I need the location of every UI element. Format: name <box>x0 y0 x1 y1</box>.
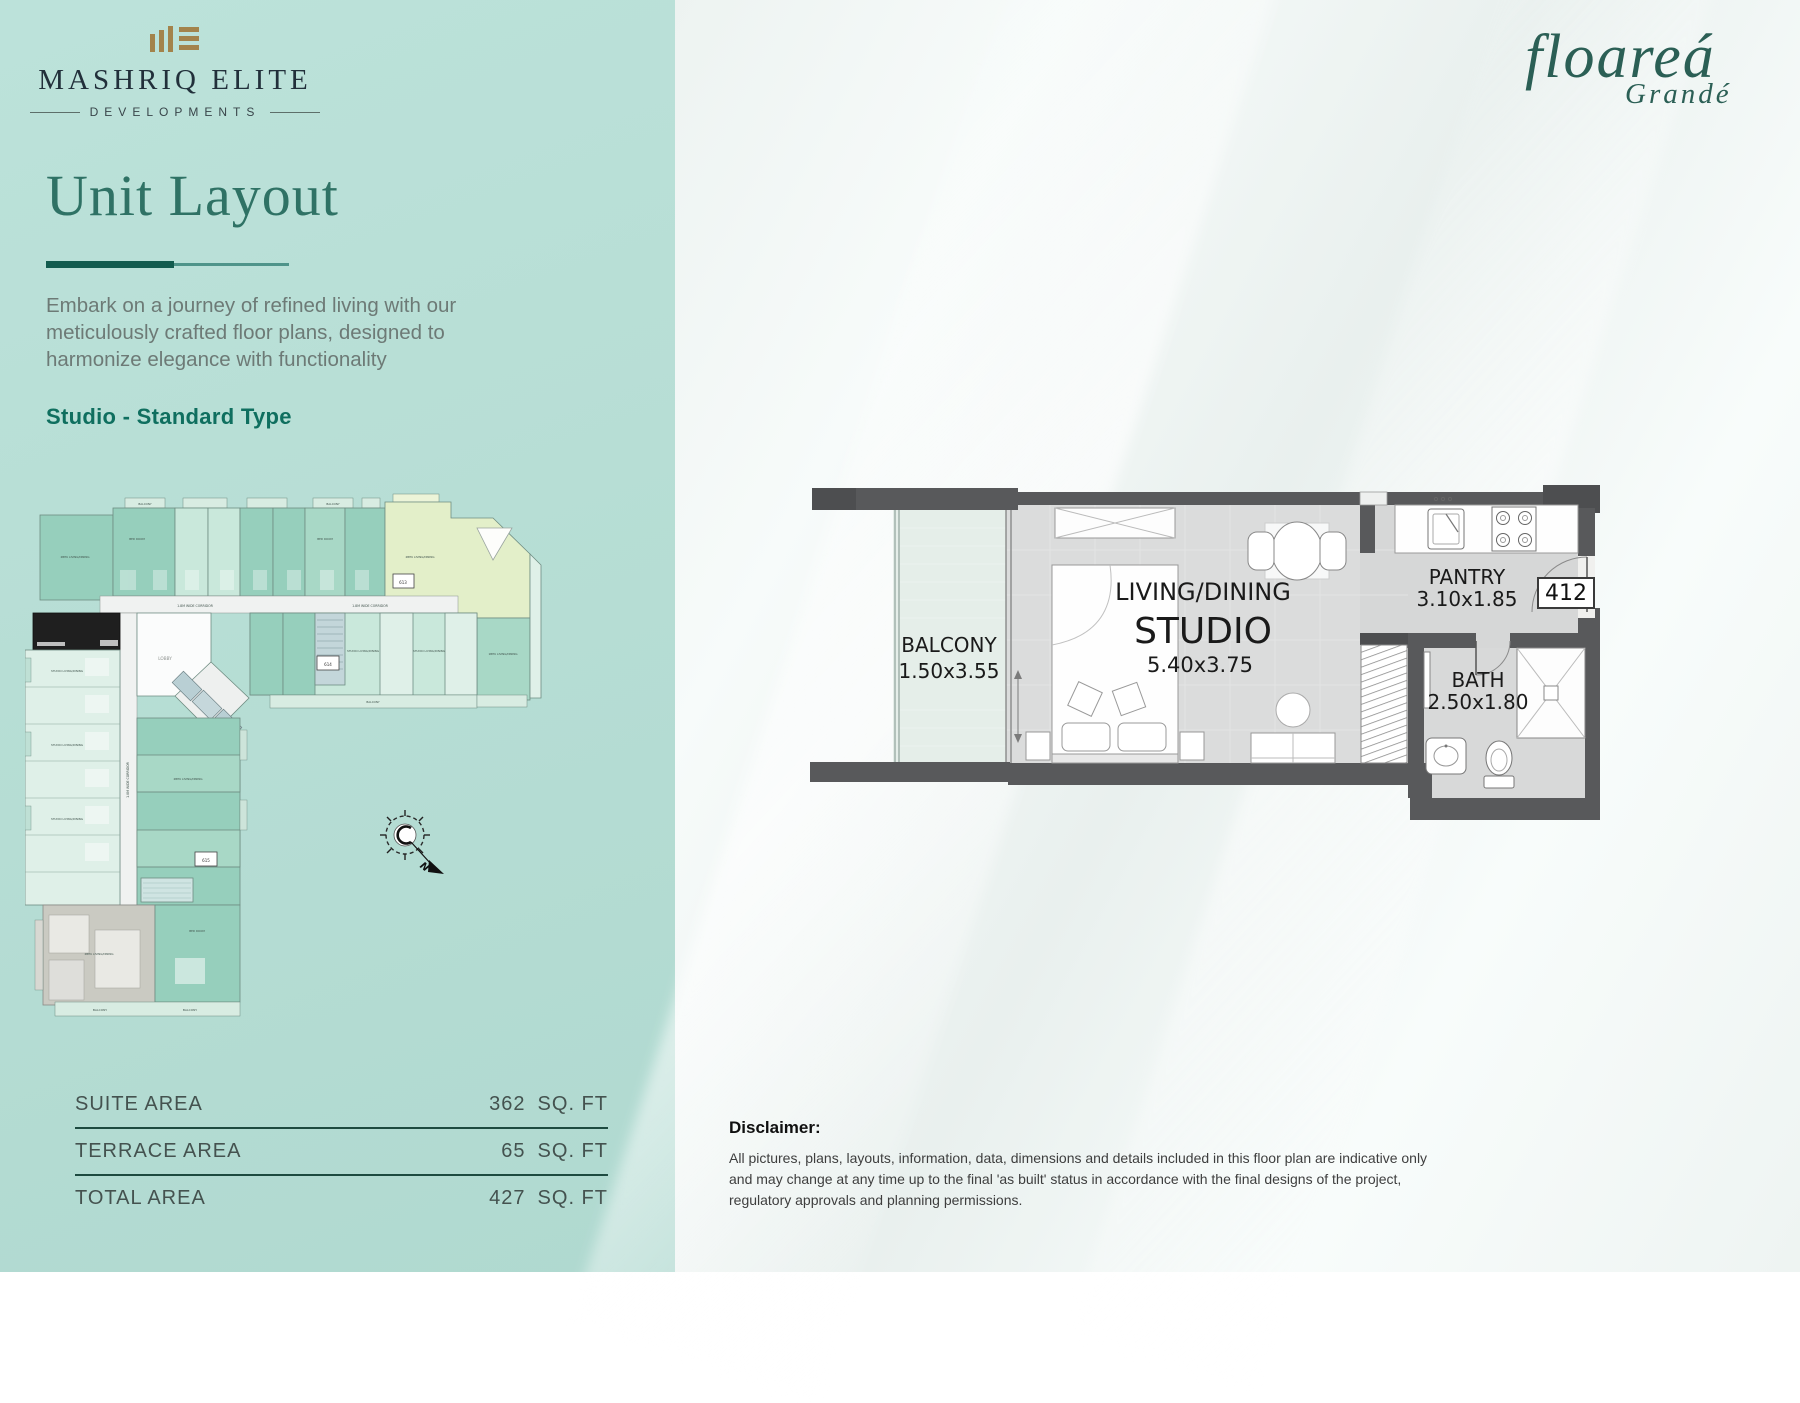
balcony-label: BALCONY <box>901 633 997 657</box>
table-row: SUITE AREA 362SQ. FT <box>75 1082 608 1129</box>
developer-logo-icon <box>150 26 200 58</box>
developer-logo: MASHRIQ ELITE DEVELOPMENTS <box>30 26 320 119</box>
svg-text:BED ROOM: BED ROOM <box>129 537 145 541</box>
page-description: Embark on a journey of refined living wi… <box>46 292 501 373</box>
chair <box>1248 532 1274 570</box>
chair <box>1320 532 1346 570</box>
compass-icon: N <box>380 810 444 875</box>
disclaimer: Disclaimer: All pictures, plans, layouts… <box>729 1118 1429 1211</box>
building-key-plan: 1.8M WIDE CORRIDOR 1.8M WIDE CORRIDOR 1.… <box>25 490 655 1050</box>
key-plan-corridor-v <box>120 613 137 905</box>
svg-text:2BHK LIVING/DINING: 2BHK LIVING/DINING <box>60 555 89 559</box>
bath-label: BATH <box>1451 668 1504 692</box>
svg-text:615: 615 <box>202 858 210 863</box>
right-panel: floareá Grandé <box>675 0 1800 1272</box>
nightstand <box>1026 732 1050 760</box>
svg-text:STUDIO LIVING/DINING: STUDIO LIVING/DINING <box>347 649 379 653</box>
area-label: SUITE AREA <box>75 1093 203 1116</box>
unit-type-heading: Studio - Standard Type <box>46 404 292 430</box>
kitchen-counter <box>1395 497 1578 553</box>
area-unit: SQ. FT <box>538 1140 608 1163</box>
unit-floor-plan: BALCONY 1.50x3.55 LIVING/DINING STUDIO 5… <box>810 480 1600 830</box>
svg-text:BALCONY: BALCONY <box>93 1008 107 1012</box>
svg-text:BED ROOM: BED ROOM <box>317 537 333 541</box>
living-dining-label: LIVING/DINING <box>1115 578 1291 606</box>
disclaimer-body: All pictures, plans, layouts, informatio… <box>729 1148 1429 1211</box>
area-unit: SQ. FT <box>538 1093 608 1116</box>
pantry-label: PANTRY <box>1429 565 1506 589</box>
title-underline <box>46 261 289 268</box>
table-row: TOTAL AREA 427SQ. FT <box>75 1176 608 1221</box>
page-title: Unit Layout <box>46 162 339 229</box>
svg-text:2BHK LIVING/DINING: 2BHK LIVING/DINING <box>405 555 434 559</box>
unit-number: 412 <box>1545 581 1587 606</box>
disclaimer-title: Disclaimer: <box>729 1118 1429 1138</box>
studio-label: STUDIO <box>1134 611 1272 652</box>
pouf <box>1276 693 1310 727</box>
svg-text:BALCONY: BALCONY <box>326 502 340 506</box>
area-value: 427 <box>489 1187 525 1210</box>
sofa <box>1251 733 1335 763</box>
area-value: 65 <box>501 1140 525 1163</box>
key-plan-left-column <box>25 650 120 905</box>
svg-text:BALCONY: BALCONY <box>183 1008 197 1012</box>
area-label: TOTAL AREA <box>75 1187 206 1210</box>
svg-text:STUDIO LIVING/DINING: STUDIO LIVING/DINING <box>51 817 83 821</box>
svg-text:613: 613 <box>399 580 407 585</box>
svg-text:2BHK LIVING/DINING: 2BHK LIVING/DINING <box>173 777 202 781</box>
toilet <box>1484 741 1514 788</box>
area-value: 362 <box>489 1093 525 1116</box>
brochure-page: MASHRIQ ELITE DEVELOPMENTS Unit Layout E… <box>0 0 1800 1272</box>
area-label: TERRACE AREA <box>75 1140 241 1163</box>
area-table: SUITE AREA 362SQ. FT TERRACE AREA 65SQ. … <box>75 1082 608 1221</box>
rule-right <box>270 112 320 113</box>
developer-name: MASHRIQ ELITE <box>30 64 320 97</box>
studio-dim: 5.40x3.75 <box>1147 653 1253 677</box>
project-logo: floareá Grandé <box>1525 26 1795 111</box>
svg-text:BALCONY: BALCONY <box>366 700 380 704</box>
svg-text:1.8M WIDE CORRIDOR: 1.8M WIDE CORRIDOR <box>126 761 130 797</box>
svg-text:STUDIO LIVING/DINING: STUDIO LIVING/DINING <box>413 649 445 653</box>
svg-text:BALCONY: BALCONY <box>138 502 152 506</box>
table-row: TERRACE AREA 65SQ. FT <box>75 1129 608 1176</box>
nightstand <box>1180 732 1204 760</box>
wardrobe <box>1360 633 1408 763</box>
balcony-dim: 1.50x3.55 <box>899 659 1000 683</box>
svg-text:1BHK LIVING/DINING: 1BHK LIVING/DINING <box>488 652 517 656</box>
left-panel: MASHRIQ ELITE DEVELOPMENTS Unit Layout E… <box>0 0 675 1272</box>
svg-text:614: 614 <box>324 662 332 667</box>
closet <box>1055 508 1175 538</box>
rule-left <box>30 112 80 113</box>
svg-text:BED ROOM: BED ROOM <box>189 929 205 933</box>
bath-dim: 2.50x1.80 <box>1428 690 1529 714</box>
area-unit: SQ. FT <box>538 1187 608 1210</box>
svg-text:STUDIO LIVING/DINING: STUDIO LIVING/DINING <box>51 743 83 747</box>
unit-number-box: 412 <box>1538 578 1594 608</box>
pantry-dim: 3.10x1.85 <box>1417 587 1518 611</box>
key-plan-corridor-h <box>100 596 458 613</box>
project-logo-subname: Grandé <box>1625 78 1795 111</box>
svg-text:2BHK LIVING/DINING: 2BHK LIVING/DINING <box>84 952 113 956</box>
washbasin <box>1426 738 1466 774</box>
svg-text:LOBBY: LOBBY <box>158 656 172 661</box>
developer-subtitle: DEVELOPMENTS <box>90 105 261 119</box>
svg-text:STUDIO LIVING/DINING: STUDIO LIVING/DINING <box>51 669 83 673</box>
stove <box>1492 507 1536 551</box>
svg-text:1.8M WIDE CORRIDOR: 1.8M WIDE CORRIDOR <box>352 604 388 608</box>
svg-text:1.8M WIDE CORRIDOR: 1.8M WIDE CORRIDOR <box>177 604 213 608</box>
